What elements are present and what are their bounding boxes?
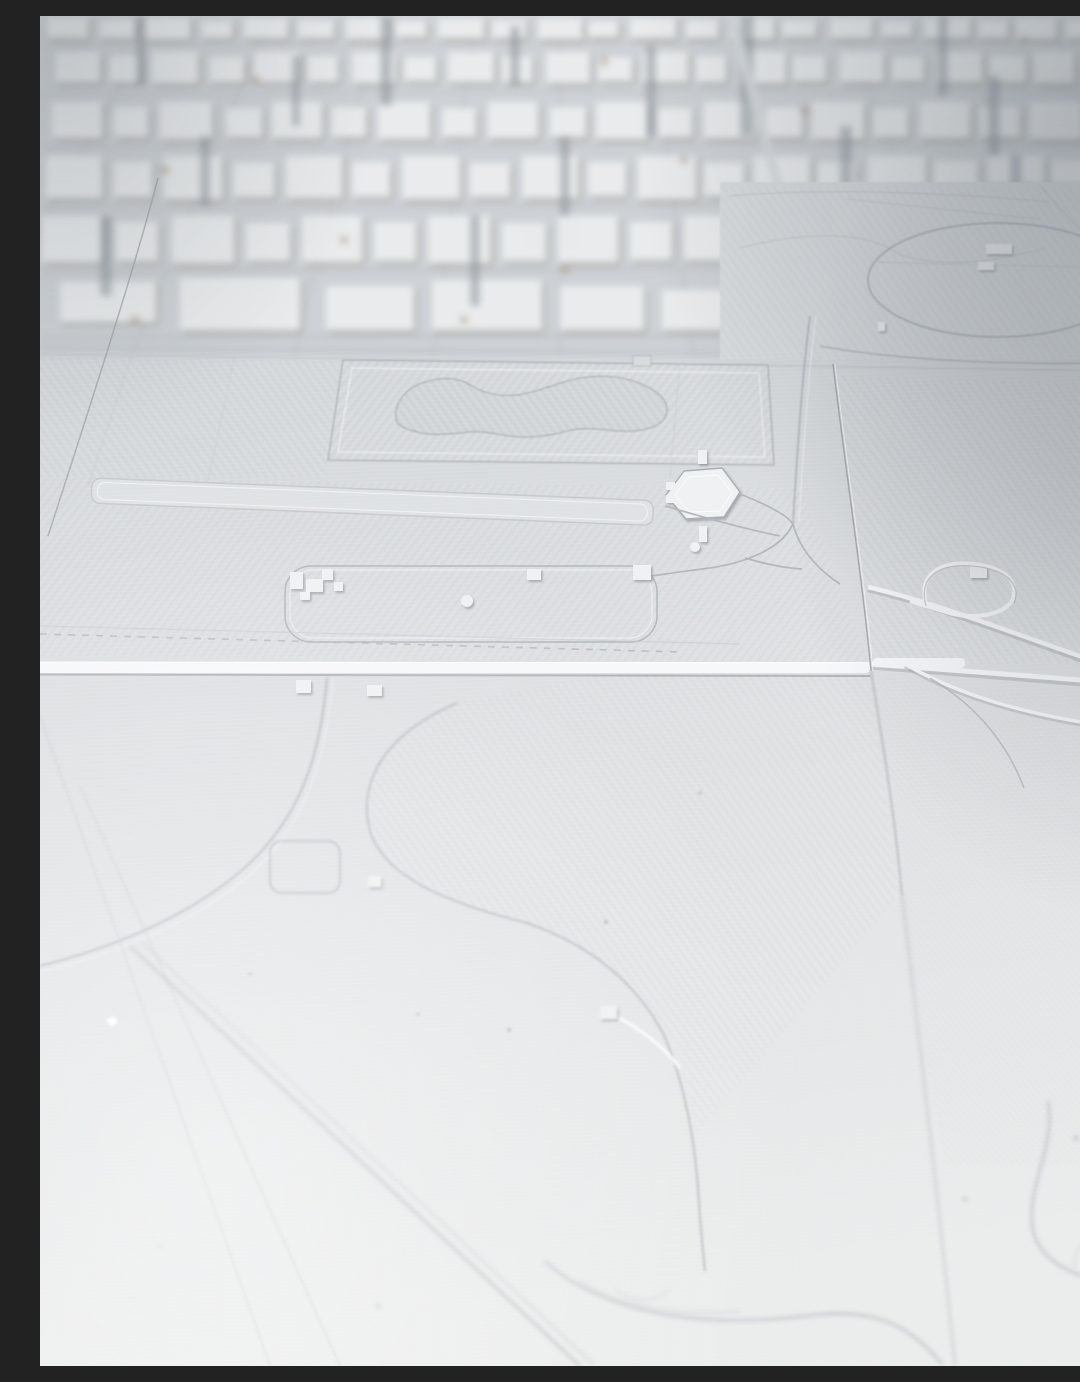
map-model-rendering <box>40 16 1080 1366</box>
highlight-bottom-left <box>40 16 1080 1366</box>
printed-city-map-photo <box>40 16 1080 1366</box>
